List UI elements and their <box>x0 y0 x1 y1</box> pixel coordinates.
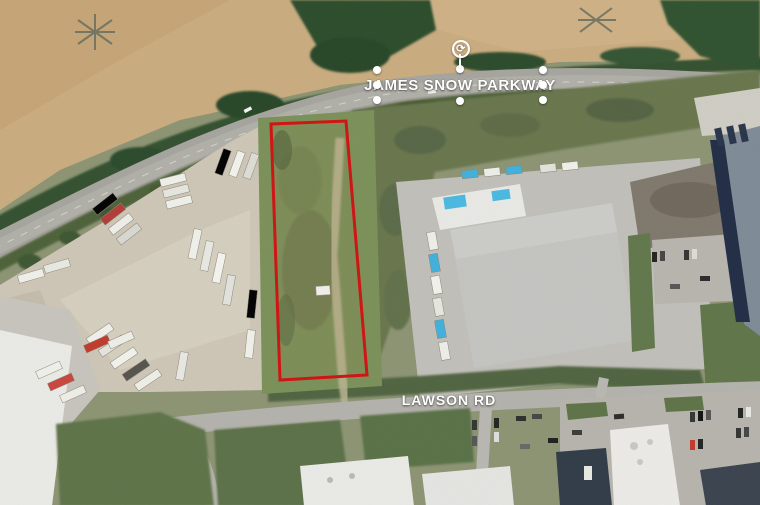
aerial-map-canvas: JAMES SNOW PARKWAY ⟳ LAWSON RD <box>0 0 760 505</box>
selection-handle-bottom-left[interactable] <box>373 96 381 104</box>
road-label-text: LAWSON RD <box>402 392 497 408</box>
road-label-lawson-rd[interactable]: LAWSON RD <box>402 389 496 411</box>
selection-handle-top-right[interactable] <box>539 66 547 74</box>
rotate-handle-icon[interactable]: ⟳ <box>452 40 470 58</box>
road-label-text: JAMES SNOW PARKWAY <box>364 77 556 94</box>
selection-handle-bottom-center[interactable] <box>456 97 464 105</box>
road-label-james-snow-parkway[interactable]: JAMES SNOW PARKWAY ⟳ <box>378 71 542 99</box>
selection-handle-mid-right[interactable] <box>539 81 547 89</box>
selection-handle-mid-left[interactable] <box>373 81 381 89</box>
selection-handle-top-left[interactable] <box>373 66 381 74</box>
selection-handle-bottom-right[interactable] <box>539 96 547 104</box>
